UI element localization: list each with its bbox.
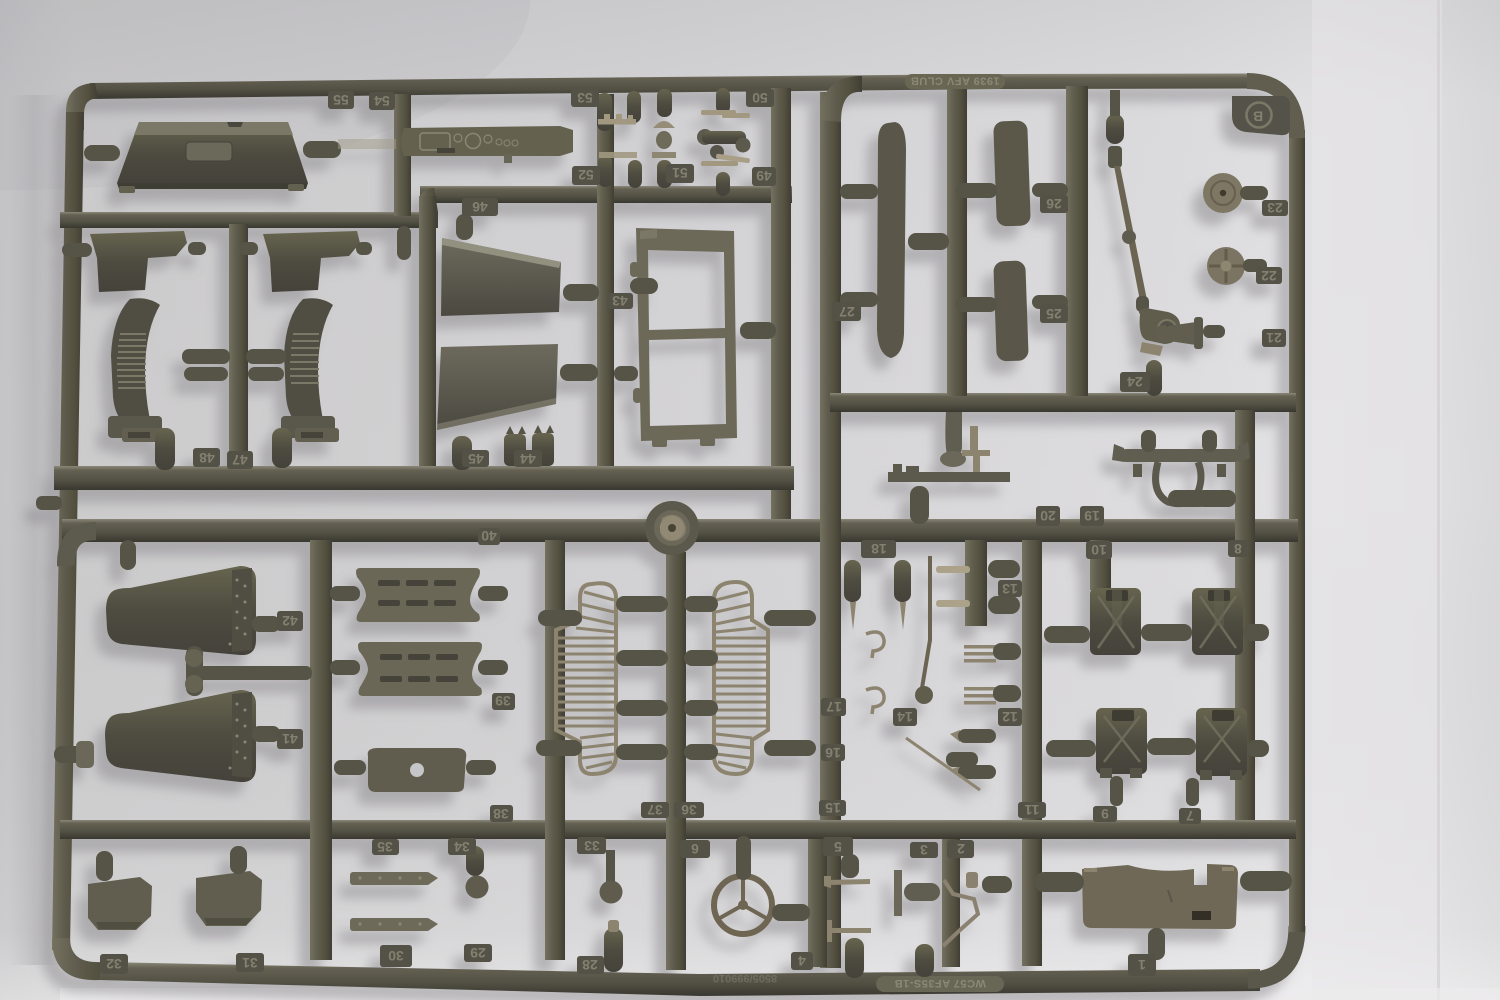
svg-text:40: 40 xyxy=(481,528,497,544)
svg-text:10: 10 xyxy=(1091,542,1107,558)
svg-text:39: 39 xyxy=(495,693,511,709)
svg-text:30: 30 xyxy=(388,948,404,964)
svg-text:9: 9 xyxy=(1101,806,1109,822)
svg-text:49: 49 xyxy=(756,168,772,184)
svg-text:B: B xyxy=(1253,109,1263,125)
svg-text:38: 38 xyxy=(493,806,509,822)
svg-text:28: 28 xyxy=(582,957,598,973)
svg-text:WC57 AF35S-1B: WC57 AF35S-1B xyxy=(894,977,986,989)
svg-text:54: 54 xyxy=(374,93,390,109)
svg-text:37: 37 xyxy=(647,802,663,818)
svg-text:51: 51 xyxy=(672,165,688,181)
svg-text:3: 3 xyxy=(920,842,928,858)
svg-text:12: 12 xyxy=(1002,709,1018,725)
svg-text:1: 1 xyxy=(1138,957,1146,973)
svg-text:42: 42 xyxy=(282,613,298,629)
svg-text:35: 35 xyxy=(377,839,393,855)
svg-text:7: 7 xyxy=(1186,808,1194,824)
svg-text:21: 21 xyxy=(1266,330,1282,346)
svg-text:52: 52 xyxy=(578,167,594,183)
svg-text:46: 46 xyxy=(472,199,488,215)
svg-text:41: 41 xyxy=(282,731,298,747)
svg-text:27: 27 xyxy=(839,304,855,320)
svg-text:11: 11 xyxy=(1024,802,1039,818)
svg-text:47: 47 xyxy=(232,452,248,468)
svg-text:23: 23 xyxy=(1267,200,1283,216)
svg-text:55: 55 xyxy=(333,92,349,108)
svg-text:29: 29 xyxy=(470,945,486,961)
svg-text:2: 2 xyxy=(957,841,965,857)
svg-text:20: 20 xyxy=(1040,508,1056,524)
svg-text:13: 13 xyxy=(1002,581,1018,597)
svg-text:44: 44 xyxy=(520,451,536,467)
svg-text:45: 45 xyxy=(468,451,484,467)
svg-text:34: 34 xyxy=(454,839,470,855)
svg-text:31: 31 xyxy=(242,955,258,971)
svg-text:19: 19 xyxy=(1084,508,1100,524)
svg-text:14: 14 xyxy=(897,709,913,725)
svg-text:22: 22 xyxy=(1261,268,1277,284)
svg-text:26: 26 xyxy=(1046,196,1062,212)
svg-text:25: 25 xyxy=(1046,306,1062,322)
svg-text:17: 17 xyxy=(826,699,842,715)
svg-text:48: 48 xyxy=(199,450,215,466)
svg-text:32: 32 xyxy=(106,956,122,972)
svg-text:18: 18 xyxy=(871,541,887,557)
svg-text:6: 6 xyxy=(691,841,699,857)
svg-text:1939 AFV CLUB: 1939 AFV CLUB xyxy=(910,75,999,87)
svg-text:16: 16 xyxy=(825,745,841,761)
svg-text:5: 5 xyxy=(834,839,842,855)
svg-text:53: 53 xyxy=(577,90,593,106)
svg-text:8505/999010: 8505/999010 xyxy=(713,972,777,984)
svg-text:8: 8 xyxy=(1234,541,1242,557)
svg-text:33: 33 xyxy=(584,838,600,854)
svg-text:43: 43 xyxy=(612,293,628,309)
svg-text:4: 4 xyxy=(798,953,806,969)
svg-text:15: 15 xyxy=(825,800,841,816)
svg-text:50: 50 xyxy=(752,90,768,106)
svg-text:24: 24 xyxy=(1127,374,1143,390)
svg-text:36: 36 xyxy=(681,802,697,818)
